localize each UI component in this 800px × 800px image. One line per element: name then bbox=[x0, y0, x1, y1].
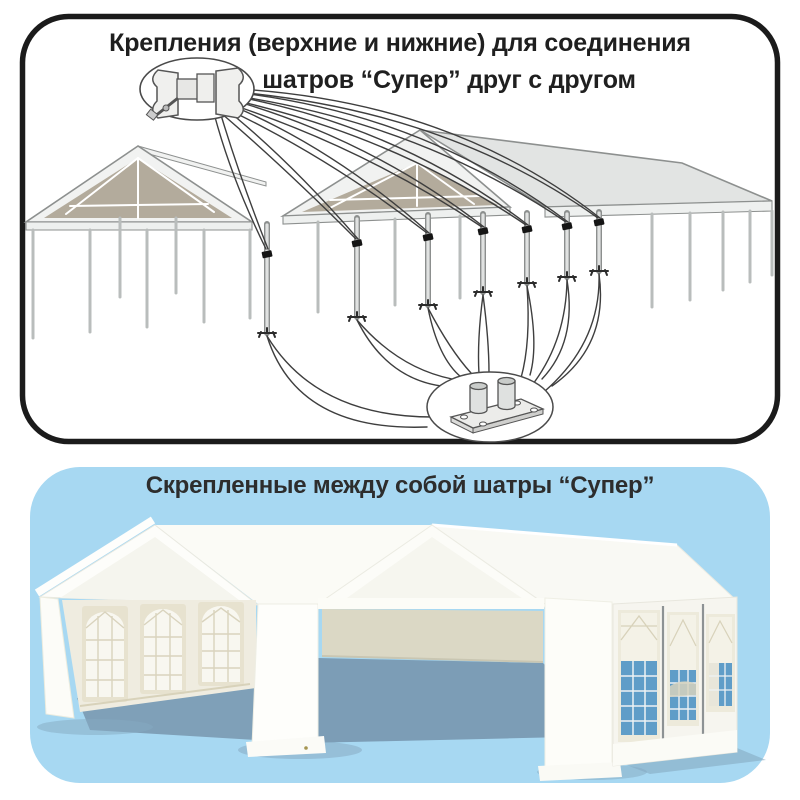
corner-column bbox=[545, 598, 612, 771]
bottom-card bbox=[30, 467, 770, 783]
window-panel bbox=[667, 612, 699, 726]
interior-back-wall bbox=[322, 609, 543, 662]
arched-window bbox=[82, 606, 128, 702]
arched-window bbox=[198, 602, 244, 686]
window-panel bbox=[618, 610, 660, 742]
base-plate-callout bbox=[427, 372, 553, 442]
upper-panel-title: Крепления (верхние и нижние) для соедине… bbox=[70, 25, 730, 99]
window-panel bbox=[706, 614, 735, 712]
right-side-wall bbox=[613, 597, 737, 766]
upper-title-line1: Крепления (верхние и нижние) для соедине… bbox=[109, 29, 691, 57]
instruction-sheet: Крепления (верхние и нижние) для соедине… bbox=[0, 0, 800, 800]
lower-panel-title: Скрепленные между собой шатры “Супер” bbox=[30, 471, 770, 501]
upper-title-line2: шатров “Супер” друг с другом bbox=[119, 62, 779, 99]
front-eave-beam bbox=[318, 598, 544, 609]
joint-column bbox=[246, 604, 326, 757]
ground-shadow bbox=[37, 719, 153, 735]
illustration-canvas bbox=[0, 0, 800, 800]
arched-window bbox=[140, 604, 186, 694]
